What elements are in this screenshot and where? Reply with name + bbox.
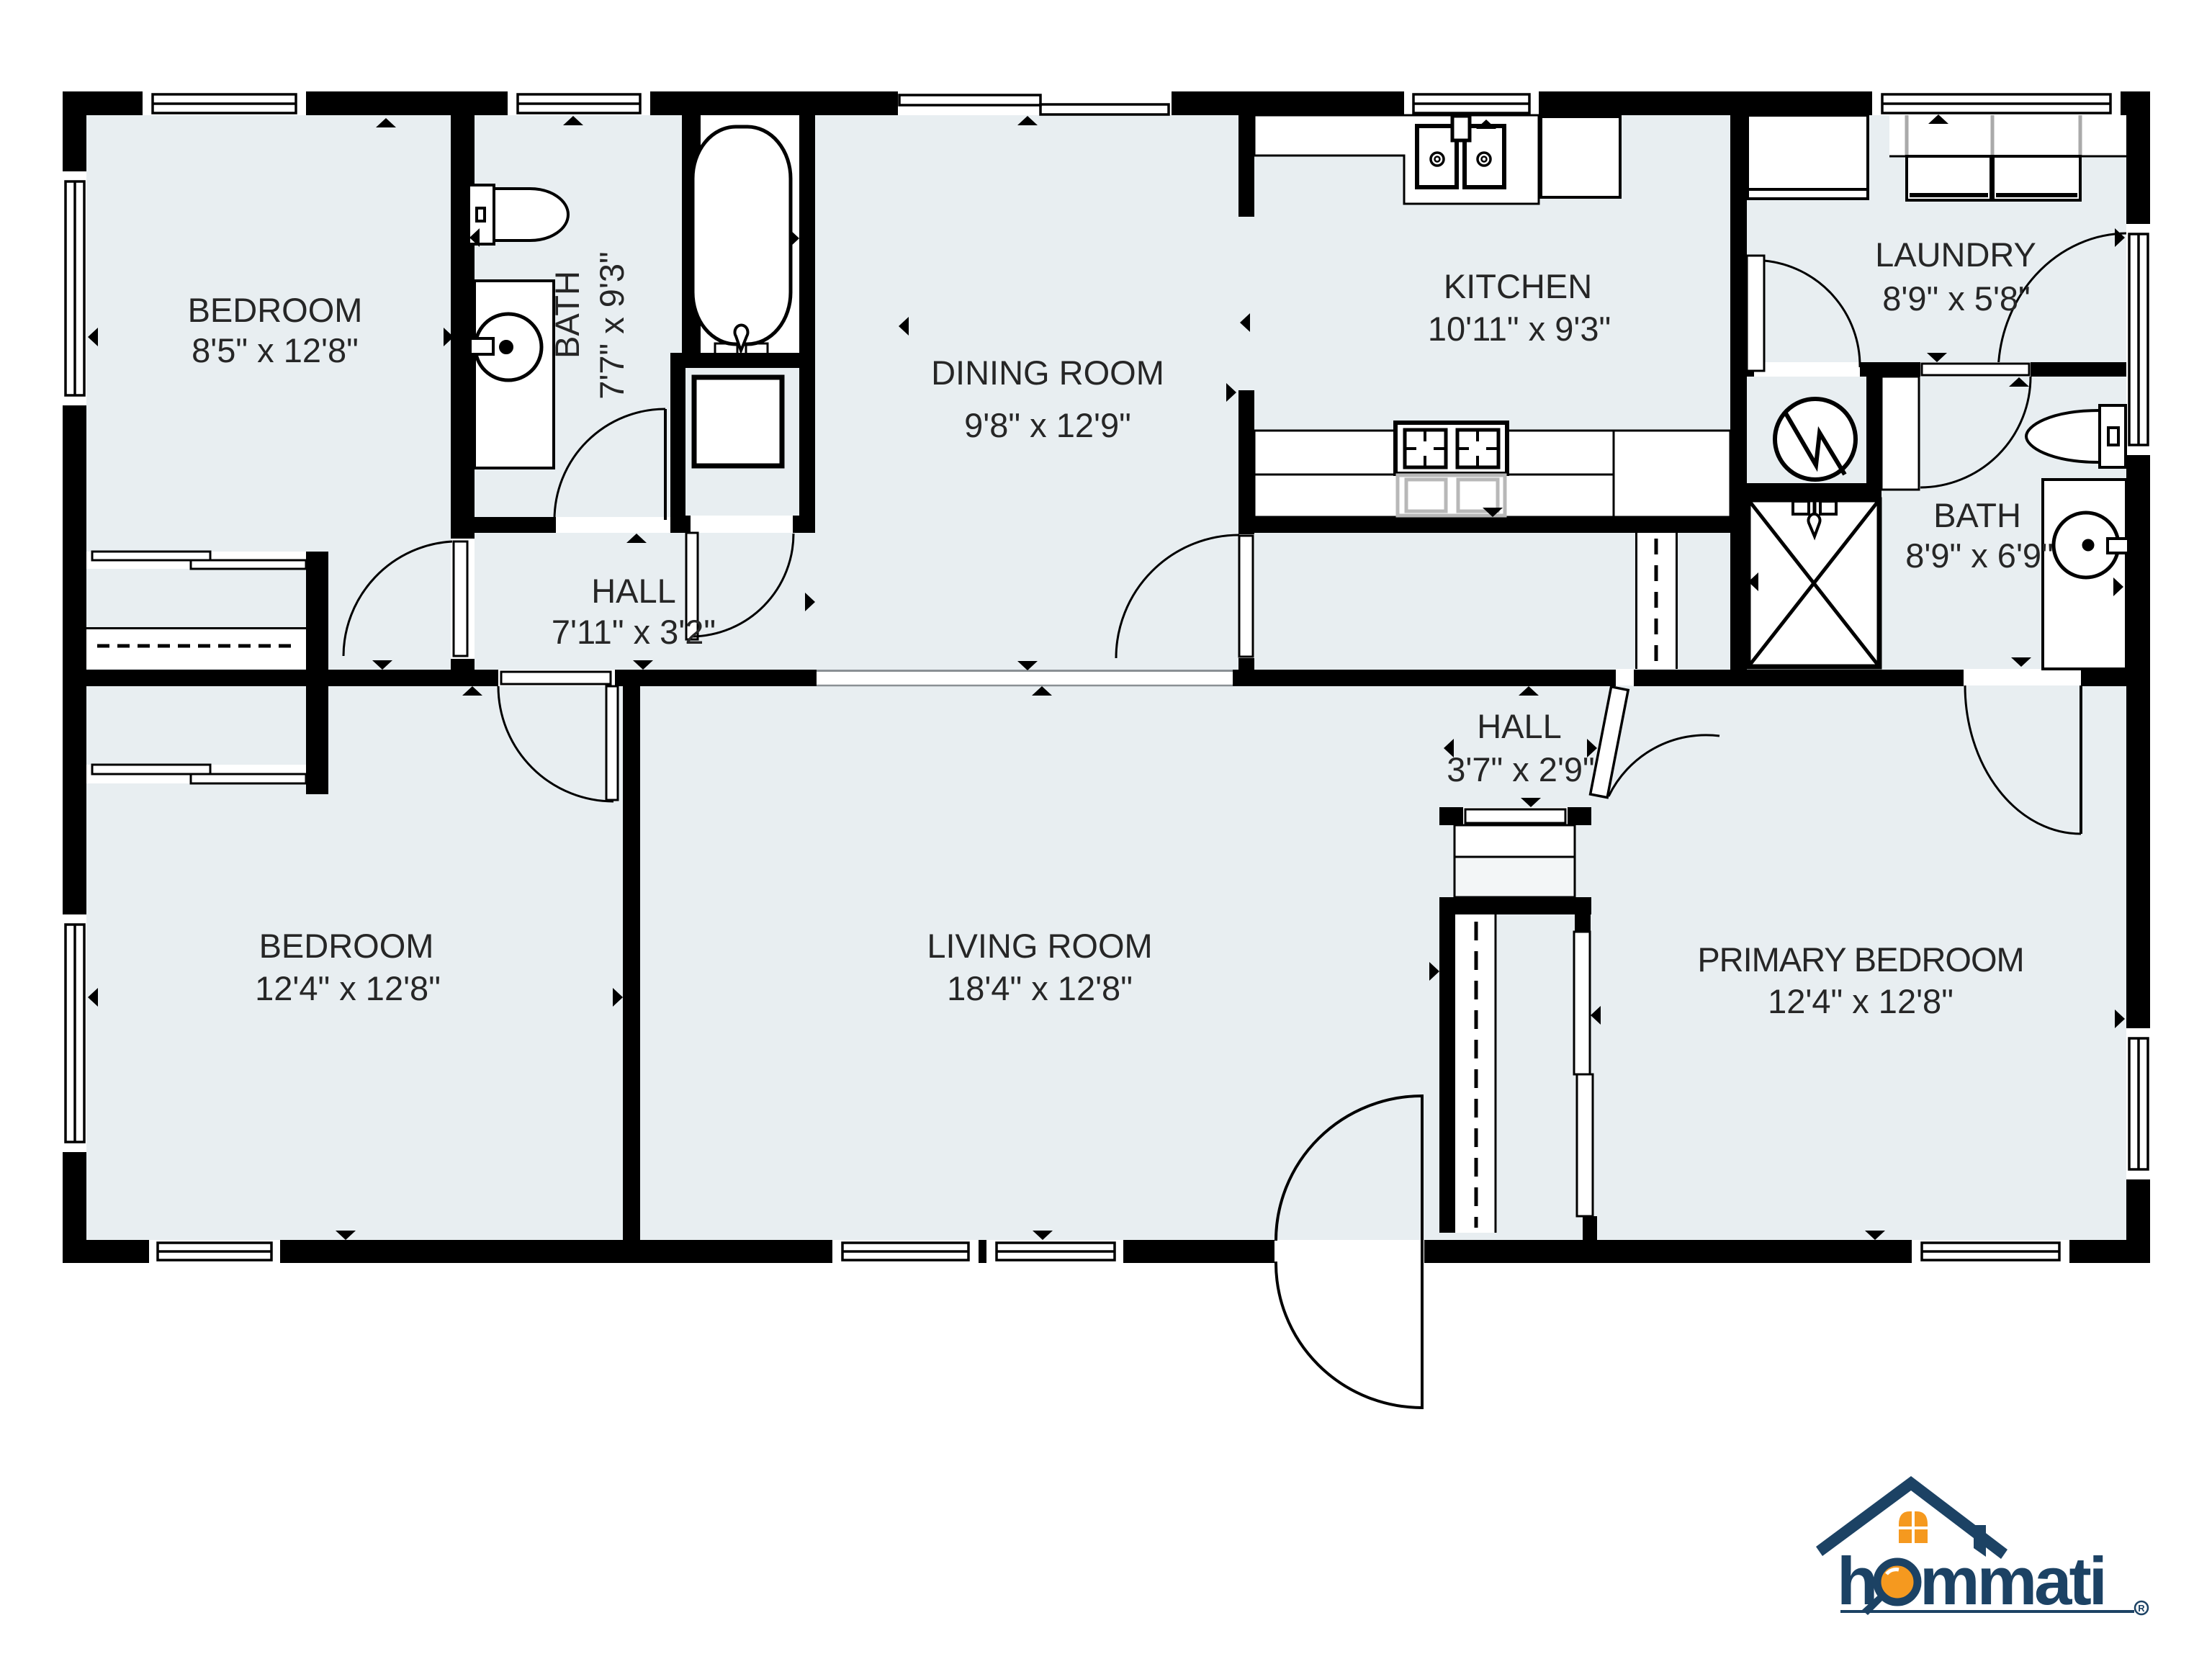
svg-text:mmati: mmati (1920, 1543, 2105, 1619)
svg-text:DINING ROOM: DINING ROOM (931, 354, 1164, 392)
svg-text:BEDROOM: BEDROOM (259, 927, 434, 965)
svg-text:LIVING ROOM: LIVING ROOM (927, 927, 1152, 965)
svg-text:3'7" x 2'9": 3'7" x 2'9" (1447, 750, 1595, 788)
svg-text:KITCHEN: KITCHEN (1444, 267, 1592, 305)
svg-text:HALL: HALL (1477, 707, 1562, 745)
svg-text:BATH: BATH (1933, 496, 2021, 534)
svg-text:12'4" x 12'8": 12'4" x 12'8" (1768, 982, 1954, 1020)
svg-text:9'8" x 12'9": 9'8" x 12'9" (964, 406, 1131, 444)
svg-text:8'9" x 5'8": 8'9" x 5'8" (1882, 279, 2031, 318)
svg-text:7'7" x 9'3": 7'7" x 9'3" (593, 251, 631, 400)
svg-text:HALL: HALL (591, 572, 676, 610)
svg-text:8'5" x 12'8": 8'5" x 12'8" (192, 331, 359, 369)
svg-text:10'11" x 9'3": 10'11" x 9'3" (1428, 310, 1611, 348)
svg-text:BATH: BATH (548, 271, 586, 359)
svg-text:PRIMARY BEDROOM: PRIMARY BEDROOM (1697, 940, 2023, 979)
svg-text:8'9" x 6'9": 8'9" x 6'9" (1905, 536, 2054, 575)
svg-text:18'4" x 12'8": 18'4" x 12'8" (947, 969, 1133, 1007)
svg-text:BEDROOM: BEDROOM (188, 291, 363, 329)
svg-text:LAUNDRY: LAUNDRY (1875, 235, 2036, 274)
svg-text:R: R (2138, 1603, 2145, 1614)
svg-text:12'4" x 12'8": 12'4" x 12'8" (255, 969, 441, 1007)
svg-text:7'11" x 3'2": 7'11" x 3'2" (552, 613, 716, 651)
